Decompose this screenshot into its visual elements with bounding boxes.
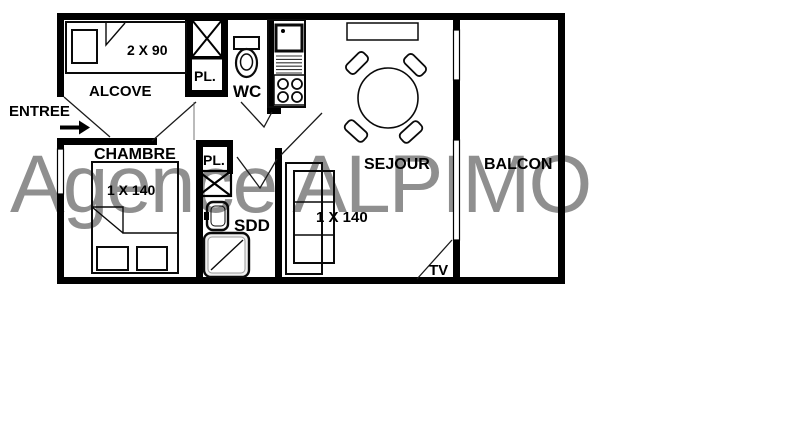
label-chambre: CHAMBRE [94,147,176,163]
chambre-bed [92,162,178,273]
alcove-bed [66,22,186,73]
wall-chambre-sdd [196,140,203,284]
sdd-door-swing [237,157,277,188]
alcove-pillow [72,30,97,63]
alcove-bed-fold [106,23,125,45]
chambre-door-swing [152,102,196,141]
wall-closet-top-bottom [185,90,228,97]
wall-right [558,13,565,284]
kitchen-faucet [281,29,285,33]
entree-arrow-icon [60,121,90,135]
kitchen-sink [276,25,302,51]
closet-top-x-icon [192,20,222,59]
chambre-bed-fold [92,207,178,233]
wall-sdd-sejour [275,148,282,284]
chair-sw [343,119,369,144]
label-chambre-bed-size: 1 X 140 [107,183,155,197]
wall-left-lower [57,194,64,284]
wall-balcon-seg1 [453,20,460,30]
wall-bottom [57,277,565,284]
chair-nw [344,50,369,75]
floor-plan-page: Agence ALPIMO [0,0,800,443]
label-tv: TV [429,263,448,278]
label-balcon: BALCON [484,157,552,173]
wall-closet-bottom-right [227,140,233,174]
label-entree: ENTREE [9,104,70,119]
wall-balcon-seg3 [453,240,460,277]
label-sofa-size: 1 X 140 [316,210,368,225]
dining-table [343,50,428,144]
washbasin-tap [204,212,209,220]
chambre-window [58,149,64,194]
entrance-door-swing [64,97,110,137]
toilet-icon [234,37,259,77]
wall-top [57,13,565,20]
wall-left-upper [57,13,64,97]
sejour-sideboard [347,23,418,40]
wall-kitchen-stub [267,107,281,114]
wall-balcon-seg2 [453,80,460,140]
balcon-window-door [454,140,460,240]
dining-chairs [343,50,428,144]
stove-burners-icon [278,79,302,102]
label-alcove-bed-size: 2 X 90 [127,43,167,57]
label-alcove: ALCOVE [89,84,152,99]
balcon-window-upper [454,30,460,80]
kitchen-drainer-hatch [276,56,302,73]
label-sejour: SEJOUR [364,157,430,173]
label-sdd: SDD [234,217,270,234]
chambre-pillow-right [137,247,167,270]
chambre-pillow-left [97,247,128,270]
chair-se [398,120,424,145]
label-closet-bottom: PL. [203,153,225,167]
label-wc: WC [233,83,261,100]
sejour-door-swing [281,113,322,155]
wall-chambre-top [57,138,157,145]
shower-icon [204,233,249,277]
floor-plan-drawing [0,0,800,443]
washbasin-icon [204,202,228,230]
label-closet-top: PL. [194,69,216,83]
